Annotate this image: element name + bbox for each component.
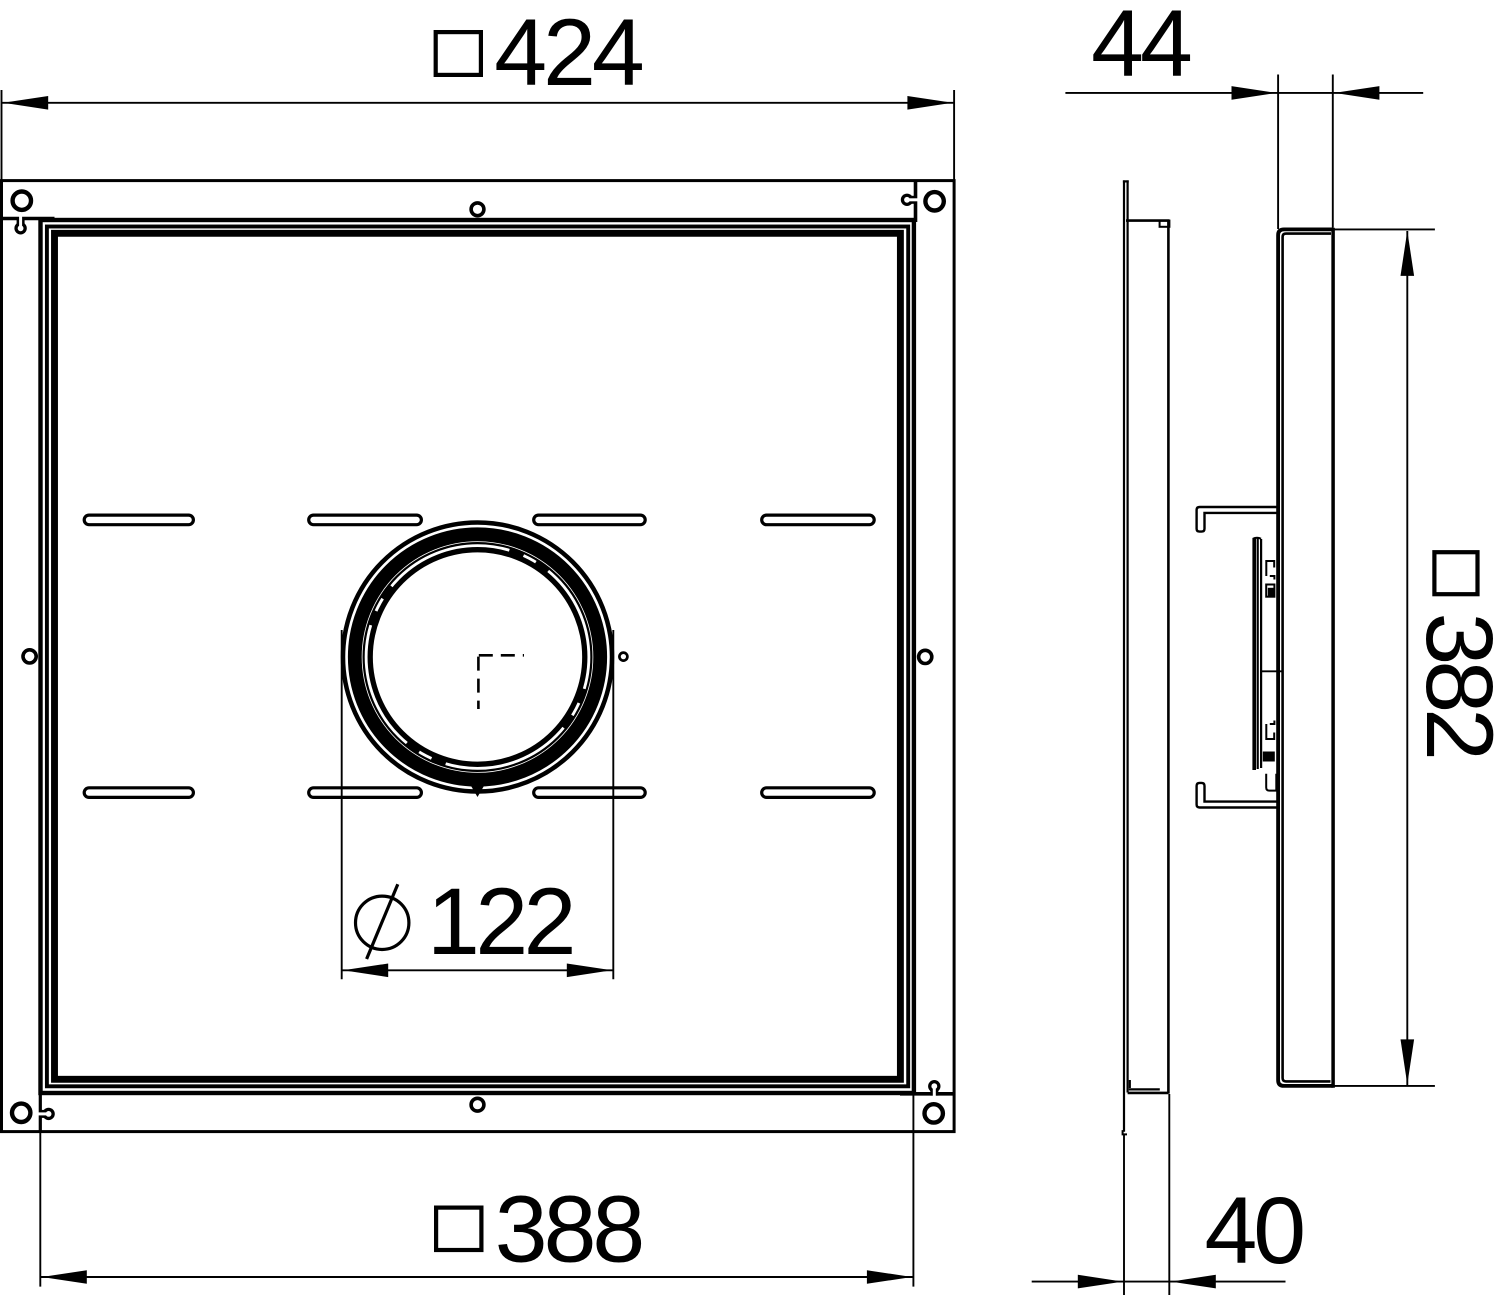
svg-text:44: 44: [1091, 0, 1191, 97]
svg-text:382: 382: [1406, 613, 1500, 758]
svg-text:40: 40: [1204, 1178, 1303, 1284]
svg-text:388: 388: [495, 1177, 642, 1283]
svg-text:424: 424: [494, 0, 643, 106]
svg-text:122: 122: [427, 869, 573, 975]
